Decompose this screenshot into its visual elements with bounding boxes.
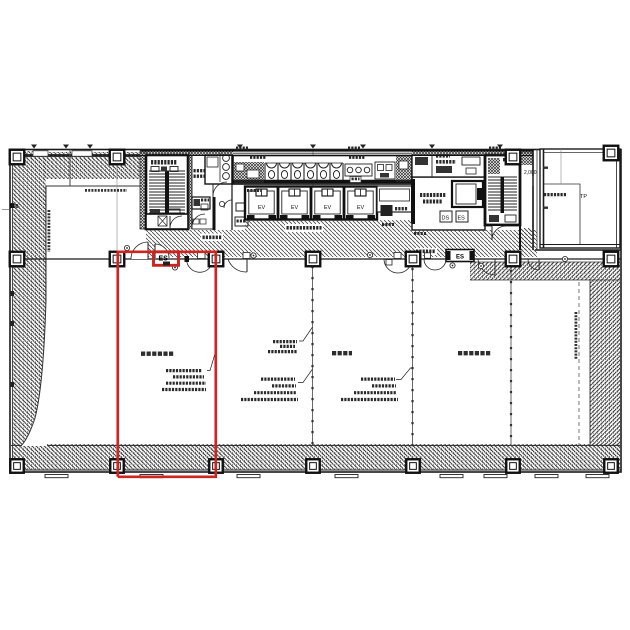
svg-text:500: 500 bbox=[10, 204, 19, 210]
svg-text:DS: DS bbox=[442, 216, 450, 222]
svg-text:ES: ES bbox=[456, 255, 464, 261]
svg-text:2,000: 2,000 bbox=[524, 170, 537, 176]
svg-text:EV: EV bbox=[324, 205, 332, 211]
svg-text:EV: EV bbox=[258, 205, 266, 211]
svg-text:TP: TP bbox=[580, 194, 587, 200]
svg-text:EV: EV bbox=[291, 205, 299, 211]
svg-text:EV: EV bbox=[357, 205, 365, 211]
svg-text:ES: ES bbox=[458, 216, 466, 222]
svg-text:ES: ES bbox=[159, 256, 169, 263]
